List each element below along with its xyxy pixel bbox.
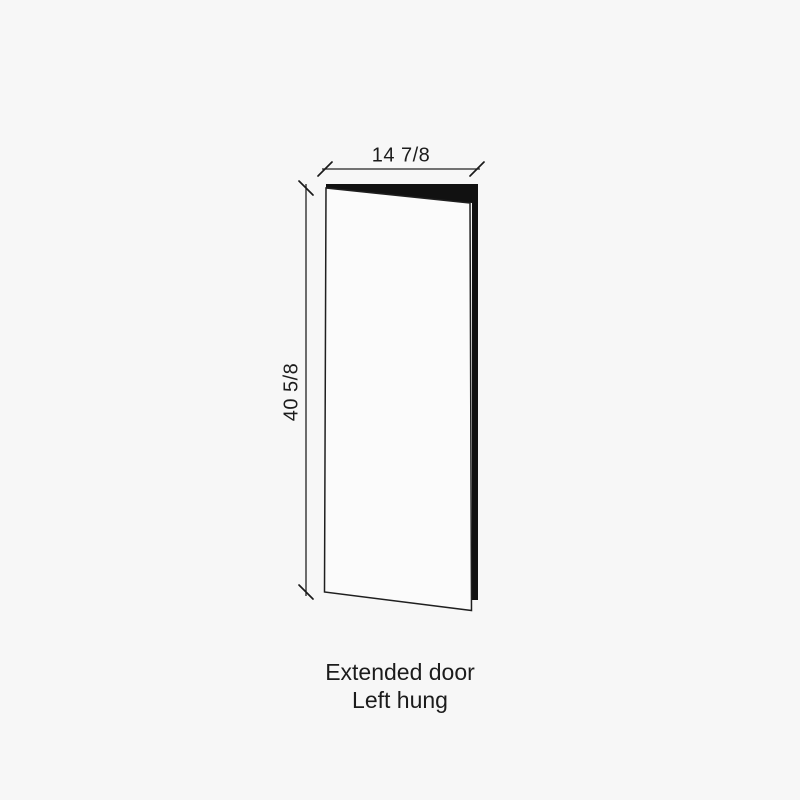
height-dimension-label: 40 5/8 <box>281 363 304 422</box>
door-front-face <box>325 188 472 611</box>
width-dimension-label: 14 7/8 <box>372 145 431 168</box>
diagram-caption: Extended door Left hung <box>0 658 800 714</box>
caption-line-2: Left hung <box>0 686 800 714</box>
caption-line-1: Extended door <box>0 658 800 686</box>
door-diagram-page: 14 7/8 40 5/8 Extended door Left hung <box>0 0 800 800</box>
